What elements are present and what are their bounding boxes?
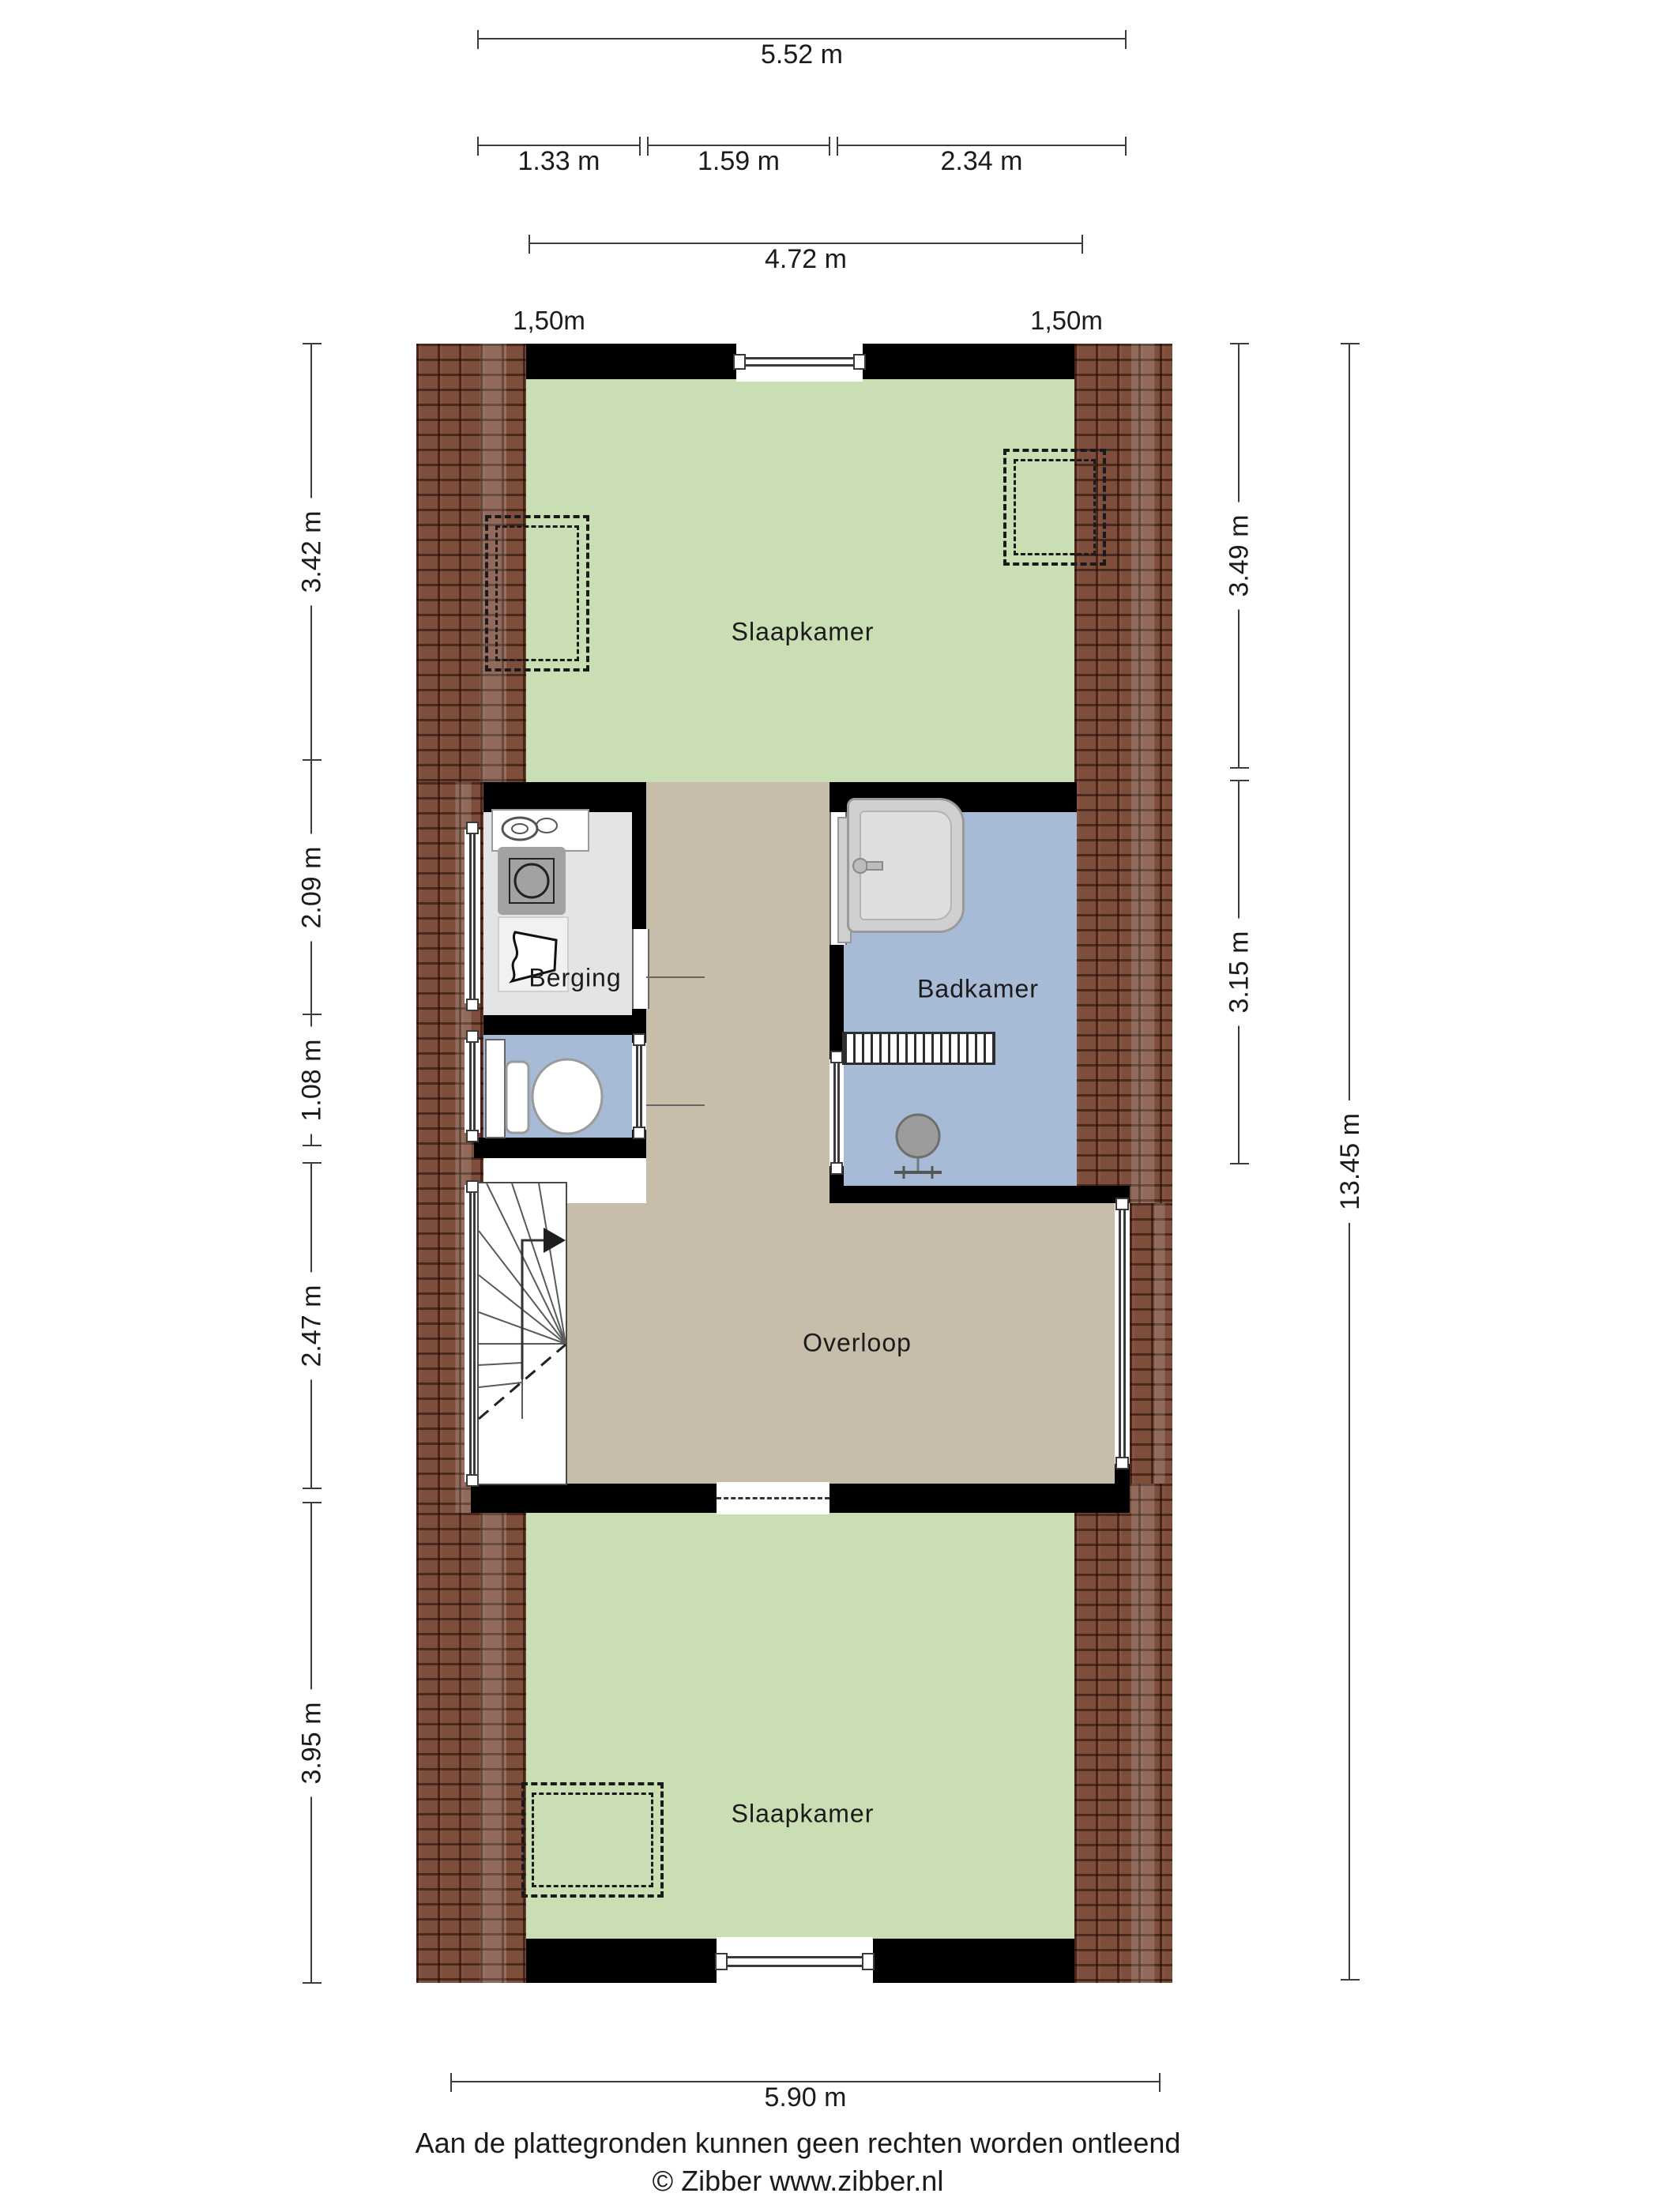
dim-label: 2.09 m bbox=[297, 833, 328, 941]
wall-berging-bottom bbox=[483, 1015, 646, 1035]
floor-slaapkamer-top bbox=[526, 379, 1074, 782]
dim-top-inner: 4.72 m bbox=[529, 243, 1082, 244]
dim-left-4: 2.47 m bbox=[310, 1163, 312, 1488]
dim-left-2: 2.09 m bbox=[310, 760, 312, 1014]
bathtub-faucet bbox=[851, 852, 886, 879]
window-badkamer-left bbox=[829, 1059, 844, 1166]
boiler-glyph bbox=[493, 811, 588, 847]
wall-toilet-bottom bbox=[474, 1138, 646, 1158]
dim-top-seg2: 1.59 m bbox=[648, 145, 829, 146]
room-label-slaapkamer-top: Slaapkamer bbox=[732, 618, 875, 647]
dim-top-total: 5.52 m bbox=[478, 38, 1126, 39]
footer-credit: © Zibber www.zibber.nl bbox=[653, 2165, 944, 2198]
bathtub-icon bbox=[847, 798, 965, 933]
dormer-outline-top-right bbox=[1003, 449, 1106, 566]
door-opening-slaapkamer-bottom bbox=[717, 1482, 829, 1514]
dormer-outline-bottom-left bbox=[521, 1782, 664, 1898]
dim-top-seg3: 2.34 m bbox=[837, 145, 1126, 146]
window-top bbox=[736, 342, 863, 382]
leader-line-berging bbox=[646, 976, 705, 978]
dim-left-3: 1.08 m bbox=[310, 1014, 312, 1145]
wall-berging-top bbox=[483, 782, 646, 812]
footer-disclaimer: Aan de plattegronden kunnen geen rechten… bbox=[416, 2127, 1181, 2160]
window-bottom bbox=[717, 1937, 873, 1986]
dim-label: 3.95 m bbox=[297, 1689, 328, 1796]
roof-tiles-left-bottom bbox=[416, 1513, 526, 1983]
door-berging bbox=[632, 929, 649, 1009]
dim-top-seg1: 1.33 m bbox=[478, 145, 640, 146]
dim-left-5: 3.95 m bbox=[310, 1503, 312, 1983]
washing-machine-glyph bbox=[498, 847, 566, 915]
room-label-overloop: Overloop bbox=[803, 1329, 912, 1358]
room-label-slaapkamer-bottom: Slaapkamer bbox=[732, 1800, 875, 1829]
washing-machine-icon bbox=[498, 847, 566, 915]
opening-dash bbox=[717, 1497, 829, 1499]
shower-icon bbox=[882, 1103, 954, 1185]
dim-right-2: 3.15 m bbox=[1238, 781, 1240, 1164]
leader-line-toilet bbox=[646, 1104, 705, 1106]
door-toilet bbox=[485, 1039, 506, 1138]
window-glazing bbox=[469, 833, 476, 999]
radiator-icon bbox=[842, 1032, 995, 1065]
staircase bbox=[477, 1182, 567, 1485]
dim-right-1: 3.49 m bbox=[1238, 344, 1240, 768]
toilet-icon bbox=[504, 1055, 607, 1139]
floor-overloop-corridor bbox=[646, 782, 829, 1203]
window-left-berging bbox=[465, 829, 480, 1003]
room-label-berging: Berging bbox=[529, 964, 621, 993]
window-glazing bbox=[1119, 1209, 1125, 1459]
window-glazing bbox=[833, 1062, 840, 1164]
dim-left-1: 3.42 m bbox=[310, 344, 312, 760]
window-toilet-right bbox=[632, 1043, 646, 1130]
dim-label: 3.49 m bbox=[1224, 502, 1255, 610]
dim-label: 2.47 m bbox=[297, 1272, 328, 1379]
dim-label: 1.08 m bbox=[297, 1026, 328, 1134]
knee-height-left: 1,50m bbox=[513, 306, 585, 336]
window-left-toilet bbox=[465, 1040, 480, 1133]
room-label-badkamer: Badkamer bbox=[917, 975, 1039, 1004]
window-glazing bbox=[744, 357, 856, 367]
window-overloop-right bbox=[1115, 1203, 1130, 1464]
floorplan-canvas: 5.52 m 1.33 m 1.59 m 2.34 m 4.72 m 1,50m… bbox=[0, 0, 1659, 2212]
dim-bottom-total: 5.90 m bbox=[451, 2081, 1160, 2082]
roof-tiles-right-bottom bbox=[1074, 1484, 1172, 1983]
dim-right-total: 13.45 m bbox=[1349, 344, 1350, 1980]
boiler-icon bbox=[491, 809, 589, 852]
dim-label: 13.45 m bbox=[1335, 1100, 1366, 1223]
knee-height-right: 1,50m bbox=[1030, 306, 1103, 336]
dim-label: 3.42 m bbox=[297, 498, 328, 606]
dormer-outline-top-left bbox=[485, 515, 589, 671]
window-glazing bbox=[469, 1191, 476, 1477]
window-glazing bbox=[726, 1956, 863, 1968]
wall-badkamer-bottom bbox=[829, 1186, 1130, 1203]
roof-tiles-right-middle bbox=[1130, 1203, 1172, 1484]
window-glazing bbox=[636, 1044, 642, 1128]
dim-label: 3.15 m bbox=[1224, 919, 1255, 1026]
window-glazing bbox=[469, 1041, 476, 1130]
